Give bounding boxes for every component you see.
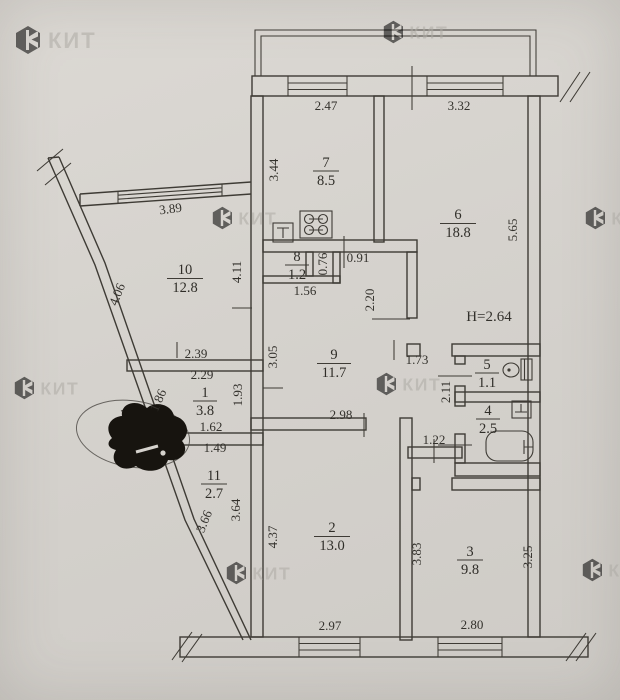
kit-logo-icon (583, 559, 602, 581)
watermark-text: КИТ (40, 378, 79, 398)
room-area: 2.5 (479, 421, 497, 437)
watermark-text: КИТ (402, 374, 441, 394)
dim-label: 2.11 (438, 381, 453, 403)
room-area: 18.8 (445, 225, 470, 241)
watermark-text: КИТ (48, 28, 97, 53)
room-number: 5 (483, 357, 490, 373)
kit-logo-icon (384, 21, 403, 43)
dim-label: 3.83 (409, 543, 424, 566)
ceiling-height-label: H=2.64 (466, 309, 512, 325)
room-label-5: 5 1.1 (475, 357, 499, 391)
dim-label: 2.20 (362, 289, 377, 312)
dim-label: 0.91 (347, 250, 370, 265)
walls-layer (48, 76, 588, 657)
room-label-4: 4 2.5 (476, 403, 500, 437)
room-number: 3 (466, 544, 473, 560)
dim-label: 1.22 (423, 432, 446, 447)
stove-icon (300, 211, 332, 238)
room-area: 9.8 (461, 562, 479, 578)
room-area: 1.2 (288, 267, 306, 283)
watermark-text: КИТ (409, 22, 448, 42)
watermark-text: КИТ (608, 560, 620, 580)
room-area: 3.8 (196, 403, 214, 419)
dim-label: 3.89 (158, 200, 182, 218)
dim-label: 1.93 (230, 384, 245, 407)
room-area: 8.5 (317, 173, 335, 189)
break-marks (37, 72, 596, 662)
dim-label: 3.32 (448, 98, 471, 113)
kit-watermark: КИТ (583, 559, 620, 581)
floorplan-scan: КИТ КИТ КИТ КИТ КИТ КИТ КИТ КИТ (0, 0, 620, 700)
kit-logo-icon (586, 207, 605, 229)
room-area: 2.7 (205, 486, 223, 502)
room-label-9: 9 11.7 (317, 347, 351, 381)
dim-label: 1.62 (200, 419, 223, 434)
dim-label: 4.11 (229, 261, 244, 283)
dim-label: 2.98 (330, 407, 353, 422)
dim-label: 5.65 (505, 219, 520, 242)
room-number: 7 (322, 155, 329, 171)
dim-label: 2.29 (191, 367, 214, 382)
kit-watermark: КИТ (384, 21, 449, 43)
dim-label: 1.49 (204, 440, 227, 455)
dim-label: 4.06 (106, 280, 129, 307)
dim-label: 3.05 (265, 346, 280, 369)
room-number: 9 (330, 347, 337, 363)
dim-label: 2.47 (315, 98, 338, 113)
room-area: 12.8 (172, 280, 197, 296)
room-number: 8 (293, 249, 300, 265)
room-number: 2 (328, 520, 335, 536)
room-area: 11.7 (322, 365, 347, 381)
room-area: 13.0 (319, 538, 344, 554)
watermark-text: КИТ (611, 208, 620, 228)
windows-layer (118, 76, 503, 657)
kit-logo-icon (377, 373, 396, 395)
room-label-11: 11 2.7 (201, 468, 227, 502)
dim-label: 2.80 (461, 617, 484, 632)
kit-watermark: КИТ (16, 26, 97, 54)
plan-drawing: КИТ КИТ КИТ КИТ КИТ КИТ КИТ КИТ (0, 0, 620, 700)
kit-watermark: КИТ (377, 373, 442, 395)
room-number: 1 (201, 385, 208, 401)
dim-label: 1.56 (294, 283, 317, 298)
room-label-3: 3 9.8 (457, 544, 483, 578)
dim-label: 3.64 (228, 498, 243, 521)
room-label-10: 10 12.8 (167, 262, 203, 296)
watermark-text: КИТ (252, 563, 291, 583)
watermark-text: КИТ (238, 208, 277, 228)
dim-label: 4.37 (265, 525, 280, 548)
room-label-7: 7 8.5 (313, 155, 339, 189)
dim-label: 2.97 (319, 618, 342, 633)
kit-watermark: КИТ (586, 207, 620, 229)
kit-logo-icon (16, 26, 40, 54)
room-area: 1.1 (478, 375, 496, 391)
ink-blot (72, 392, 195, 475)
kit-watermark: КИТ (227, 562, 292, 584)
room-label-1: 1 3.8 (193, 385, 217, 419)
dim-label: 3.44 (266, 158, 281, 181)
dim-label: 0.76 (315, 252, 330, 275)
room-label-2: 2 13.0 (314, 520, 350, 554)
kit-watermark: КИТ (15, 377, 80, 399)
room-number: 11 (207, 468, 221, 484)
room-number: 10 (178, 262, 193, 278)
dim-label: 1.73 (406, 352, 429, 367)
kit-watermark: КИТ (213, 207, 278, 229)
dim-label: 2.39 (185, 346, 208, 361)
kit-logo-icon (15, 377, 34, 399)
room-label-6: 6 18.8 (440, 207, 476, 241)
room-number: 4 (484, 403, 492, 419)
room-number: 6 (454, 207, 461, 223)
kit-logo-icon (213, 207, 232, 229)
dim-label: 3.66 (193, 507, 216, 534)
kit-logo-icon (227, 562, 246, 584)
dim-label: 3.25 (520, 546, 535, 569)
